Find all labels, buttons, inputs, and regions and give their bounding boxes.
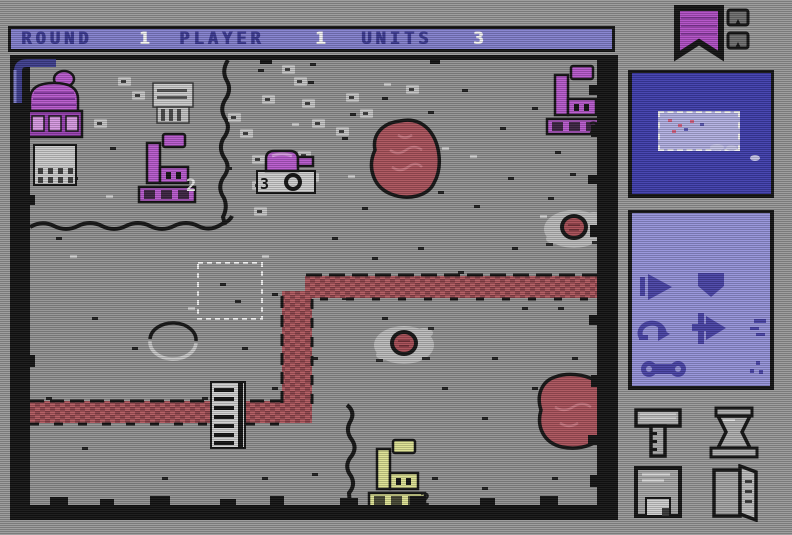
minimap-viewport[interactable] (658, 111, 740, 151)
status-bar: ROUND 1 PLAYER 1 UNITS 3 (8, 26, 615, 52)
mini-flag-2-icon[interactable] (726, 31, 750, 51)
lake-north (372, 120, 440, 197)
disk-save-icon[interactable] (632, 464, 684, 522)
panel-dots (750, 361, 763, 374)
units-label: UNITS (361, 30, 432, 49)
battle-map[interactable]: 2 2 2 3 (10, 55, 618, 520)
gray-building[interactable] (34, 145, 76, 185)
round-label: ROUND (21, 30, 92, 49)
tank-unit-count: 3 (260, 175, 269, 193)
units-value: 3 (473, 30, 487, 49)
hourglass-wait-icon[interactable] (708, 404, 760, 462)
round-value: 1 (139, 30, 153, 49)
hammer-build-icon[interactable] (632, 404, 684, 462)
command-panel (628, 210, 774, 390)
mini-flag-1-icon[interactable] (726, 8, 750, 28)
panel-dashes (750, 319, 766, 336)
door-exit-icon[interactable] (710, 464, 762, 522)
player-value: 1 (315, 30, 329, 49)
link-button[interactable] (641, 361, 686, 377)
minimap-terrain-dot (750, 155, 760, 161)
game-screen: ROUND 1 PLAYER 1 UNITS 3 (0, 0, 792, 535)
player-label: PLAYER (179, 30, 264, 49)
deploy-button[interactable] (640, 274, 672, 300)
move-button[interactable] (692, 313, 726, 344)
crater-center (374, 326, 434, 364)
factory-nw-count: 2 (186, 176, 196, 196)
bridge[interactable] (211, 382, 245, 448)
minimap[interactable] (628, 70, 774, 198)
player-banner-icon[interactable] (672, 4, 726, 62)
ruined-building (153, 83, 193, 123)
undo-button[interactable] (639, 323, 670, 341)
shield-button[interactable] (698, 273, 724, 297)
